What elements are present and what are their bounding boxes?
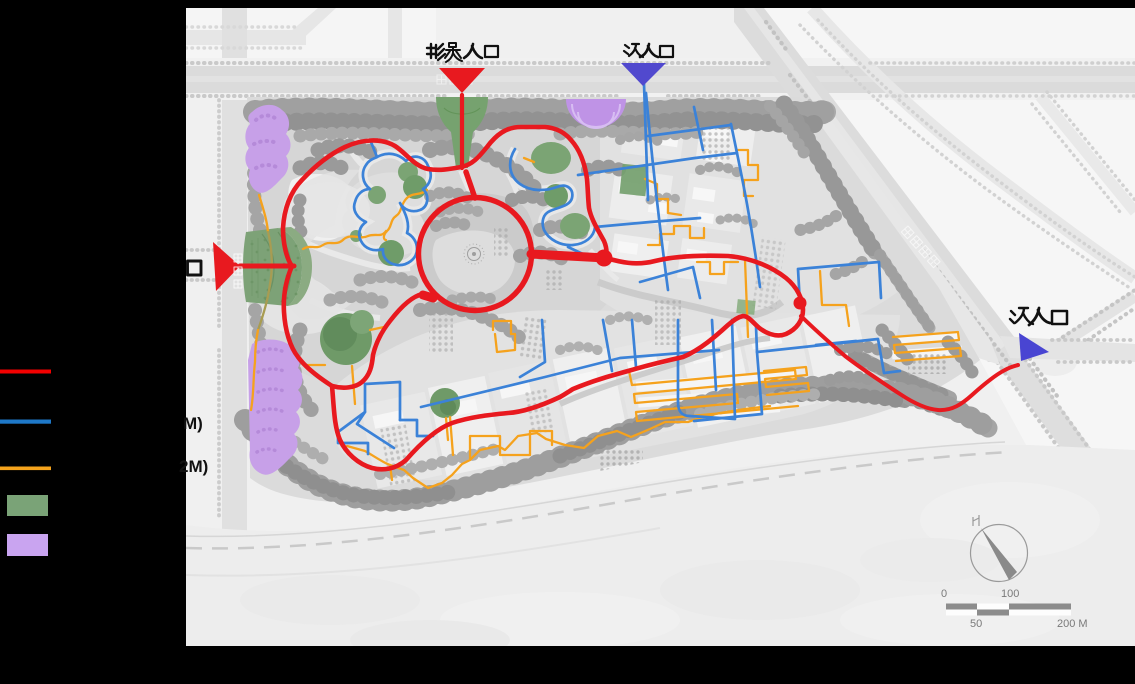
svg-text:M): M) — [183, 414, 203, 433]
svg-text:50: 50 — [970, 618, 982, 630]
svg-text:2M): 2M) — [179, 457, 208, 476]
svg-text:100: 100 — [1001, 588, 1019, 600]
svg-text:200 M: 200 M — [1057, 618, 1088, 630]
svg-text:0: 0 — [941, 588, 947, 600]
